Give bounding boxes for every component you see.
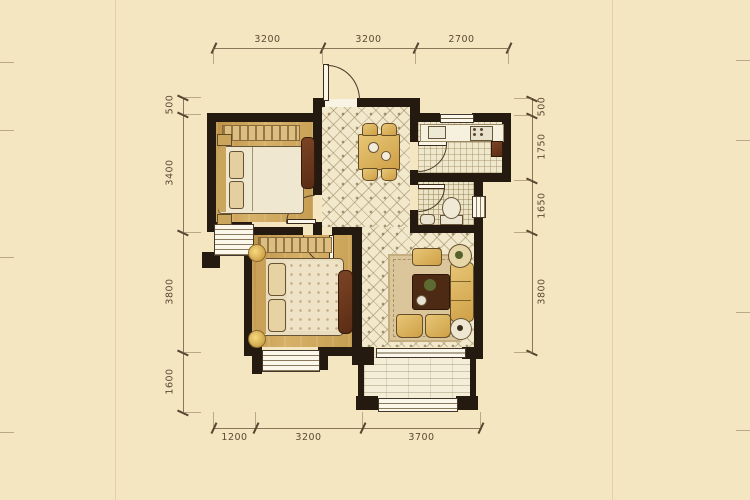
dim-line-right: [532, 98, 533, 352]
dim-ext: [183, 114, 201, 115]
dim-label-right-1: 500: [537, 87, 548, 127]
plate-icon: [368, 142, 379, 153]
floral-duvet: [287, 261, 340, 331]
dim-label-left-2: 3400: [165, 153, 176, 193]
table-plant: [424, 279, 436, 291]
kitchen-window: [440, 114, 474, 123]
toilet-icon: [442, 197, 461, 219]
dim-ext: [213, 412, 214, 428]
chair-icon: [362, 123, 378, 136]
wall: [207, 113, 322, 122]
wall: [474, 225, 483, 352]
pillow-icon: [268, 263, 286, 296]
dim-label-left-4: 1600: [165, 362, 176, 402]
wall: [410, 113, 440, 122]
dim-line-top: [213, 48, 508, 49]
wall: [352, 227, 362, 356]
chair-icon: [362, 168, 378, 181]
burner: [480, 128, 483, 131]
tv-cabinet-icon: [338, 270, 353, 334]
dim-ext: [508, 48, 509, 64]
table-flower: [416, 295, 427, 306]
wall: [410, 225, 483, 233]
burner: [473, 133, 476, 136]
dim-ext: [183, 97, 201, 98]
dim-ext: [480, 412, 481, 428]
nightstand-icon: [217, 134, 232, 146]
balcony-floor: [364, 356, 472, 400]
bedside-lamp-icon: [248, 244, 266, 262]
armchair-icon: [396, 314, 423, 338]
dim-label-left-3: 3800: [165, 272, 176, 312]
dim-label-top-3: 2700: [429, 34, 494, 45]
blanket-fold: [252, 147, 253, 211]
bg-guide-left: [115, 0, 116, 500]
entry-threshold: [325, 99, 357, 107]
dim-label-right-3: 1650: [537, 186, 548, 226]
dim-ext: [514, 115, 532, 116]
floor-lamp-center: [457, 325, 463, 331]
dim-ext: [183, 412, 201, 413]
dim-ext: [514, 98, 532, 99]
bedside-lamp-icon: [248, 330, 266, 348]
dim-ext: [322, 48, 323, 64]
balcony-sliding-door: [376, 348, 466, 358]
bg-guide-right: [612, 0, 613, 500]
bed-headboard: [218, 146, 226, 212]
nightstand-icon: [217, 214, 232, 225]
dim-ext: [362, 412, 363, 428]
plate-icon: [381, 151, 391, 161]
bg-dash: [0, 130, 14, 131]
wall: [356, 396, 378, 410]
wall: [456, 396, 478, 410]
dim-label-top-2: 3200: [336, 34, 401, 45]
dim-ext: [213, 48, 214, 64]
sofa-icon: [450, 262, 474, 322]
dim-ext: [255, 412, 256, 428]
bg-dash: [736, 312, 750, 313]
dim-line-left: [183, 97, 184, 412]
bg-dash: [736, 140, 750, 141]
wall: [474, 182, 483, 196]
burner: [473, 128, 476, 131]
dim-ext: [415, 48, 416, 64]
armchair-icon: [425, 314, 451, 338]
dim-ext: [514, 180, 532, 181]
wardrobe-icon: [222, 125, 300, 141]
plant-leaves: [455, 251, 463, 259]
chair-icon: [381, 123, 397, 136]
dim-label-left-1: 500: [165, 85, 176, 125]
dining-table-icon: [358, 134, 400, 170]
dim-label-bottom-2: 3200: [276, 432, 341, 443]
bench-icon: [412, 248, 442, 266]
pillow-icon: [229, 181, 244, 209]
sofa-cushion-line: [451, 281, 471, 282]
dim-ext: [514, 352, 532, 353]
bg-dash: [736, 60, 750, 61]
bg-dash: [0, 257, 14, 258]
bg-dash: [0, 432, 14, 433]
bed-headboard: [256, 258, 266, 334]
dim-line-bottom: [213, 428, 480, 429]
pillow-icon: [229, 151, 244, 179]
wall: [207, 113, 216, 232]
sink-icon: [428, 126, 446, 139]
bathroom-window: [472, 196, 486, 218]
balcony-window: [378, 398, 458, 412]
chair-icon: [381, 168, 397, 181]
wall: [410, 173, 511, 182]
floor-plan: 3200 3200 2700 1200 3200 3700 500 3400 3…: [0, 0, 750, 500]
entry-door-arc: [327, 65, 360, 100]
dim-label-right-2: 1750: [537, 127, 548, 167]
wardrobe-icon: [258, 237, 332, 253]
washbasin-icon: [420, 214, 435, 225]
fridge-icon: [491, 141, 503, 157]
dim-label-right-4: 3800: [537, 272, 548, 312]
burner: [480, 133, 483, 136]
dim-label-bottom-1: 1200: [202, 432, 267, 443]
dim-ext: [183, 232, 201, 233]
bedroom-2-bay-window: [262, 350, 320, 372]
dresser-icon: [301, 137, 315, 189]
dim-label-top-1: 3200: [235, 34, 300, 45]
dim-ext: [514, 232, 532, 233]
wall: [410, 170, 418, 185]
wall: [252, 347, 262, 374]
bg-dash: [0, 62, 14, 63]
pillow-icon: [268, 299, 286, 332]
wall: [410, 122, 418, 142]
dim-ext: [183, 352, 201, 353]
dim-label-bottom-3: 3700: [389, 432, 454, 443]
bg-dash: [736, 430, 750, 431]
sofa-cushion-line: [451, 300, 471, 301]
